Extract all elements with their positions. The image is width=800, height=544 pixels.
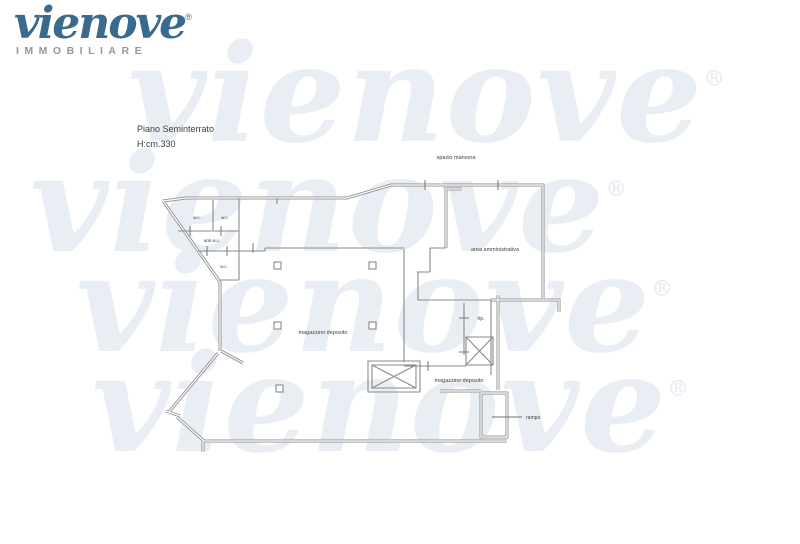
label-rip: rip. (478, 316, 485, 322)
plan-outer-walls (163, 185, 559, 452)
outer-wall-band (163, 185, 559, 452)
floor-title: Piano Seminterrato (137, 122, 214, 137)
label-wc-1: w.c. (193, 215, 201, 220)
small-x-box (466, 337, 493, 365)
label-area-amministrativa: area amministrativa (471, 247, 520, 253)
floor-plan-page: vienove® vienove® vienove® vienove® vien… (0, 0, 800, 544)
outer-wall-core (163, 185, 559, 452)
tick-marks-path (190, 180, 498, 371)
label-spazio-manovra: spazio manovra (437, 155, 477, 161)
room-labels: spazio manovra area amministrativa magaz… (193, 155, 540, 421)
floor-height-note: H:cm.330 (137, 137, 214, 152)
column-markers (274, 262, 376, 392)
label-rampa: rampa (526, 415, 540, 421)
plan-inner-walls (178, 198, 491, 375)
inner-walls-path (178, 198, 491, 375)
plan-title-block: Piano Seminterrato H:cm.330 (137, 122, 214, 152)
label-wc-2: w.c. (221, 215, 229, 220)
column-marker-path (274, 262, 376, 392)
label-magazzino-deposito-small: magazzino deposito (435, 378, 484, 384)
label-wc-3: w.c. (220, 264, 228, 269)
label-magazzino-deposito-main: magazzino deposito (299, 330, 348, 336)
label-anti-wc: anti w.c. (204, 238, 220, 243)
floor-plan-svg: spazio manovra area amministrativa magaz… (0, 0, 800, 544)
